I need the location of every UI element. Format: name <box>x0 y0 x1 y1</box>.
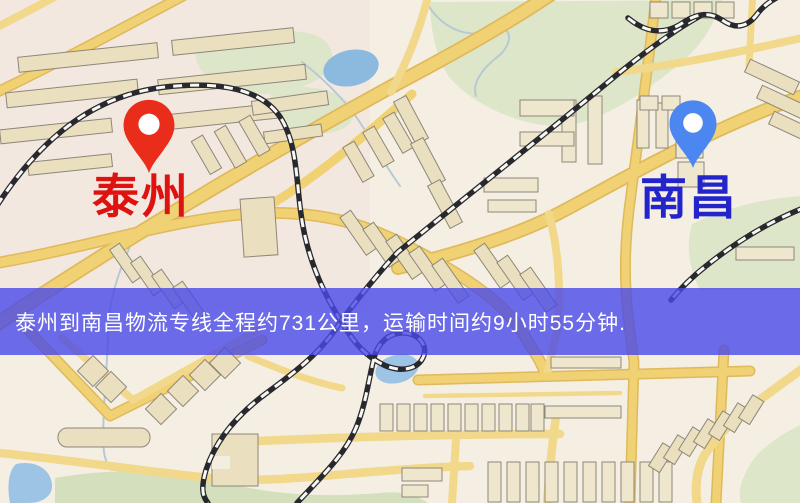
route-map: 泰州 南昌 泰州到南昌物流专线全程约731公里，运输时间约9小时55分钟. <box>0 0 800 503</box>
route-banner: 泰州到南昌物流专线全程约731公里，运输时间约9小时55分钟. <box>0 288 800 355</box>
route-banner-text: 泰州到南昌物流专线全程约731公里，运输时间约9小时55分钟. <box>15 307 626 337</box>
map-canvas <box>0 0 800 503</box>
